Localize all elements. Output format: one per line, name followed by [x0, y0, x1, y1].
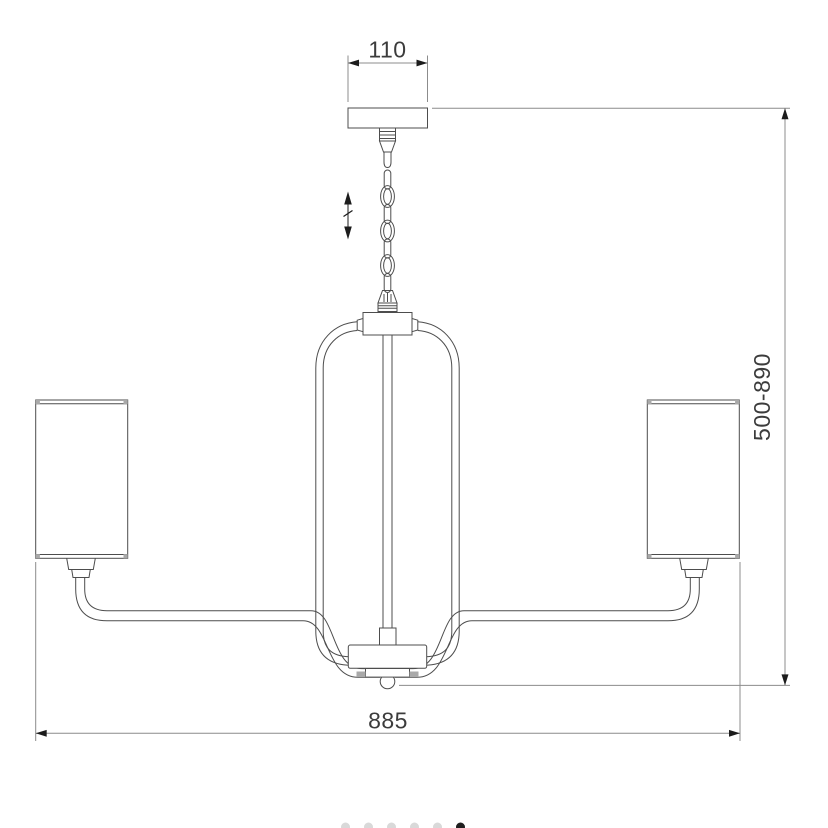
pagination-dot[interactable]	[410, 823, 419, 828]
height-range-label: 500-890	[749, 353, 775, 441]
top-hub-body	[363, 313, 412, 336]
left-shade-body	[36, 400, 128, 558]
product-artwork	[36, 108, 740, 689]
shade-corner-mark	[735, 400, 739, 404]
knurl-lines	[380, 132, 396, 139]
arrow-down-icon	[782, 674, 789, 685]
chain-link-inner	[384, 258, 392, 273]
frame-left-outer	[316, 322, 357, 666]
left-arm-top-line	[85, 578, 372, 669]
shade-corner-mark	[647, 400, 651, 404]
left-shade	[36, 400, 128, 578]
canopy-hook-loop	[384, 152, 391, 168]
canopy-cone	[380, 141, 396, 152]
pagination-dot[interactable]	[433, 823, 442, 828]
pagination-dots	[341, 823, 465, 828]
dimension-arrows	[36, 60, 789, 737]
right-shade-socket-upper	[680, 558, 709, 569]
right-shade-body	[647, 400, 739, 558]
chain-link-inner	[384, 223, 392, 238]
bottom-hub-body	[348, 645, 426, 668]
total-width-label: 885	[368, 708, 408, 734]
adjust-arrow-up-icon	[344, 192, 352, 205]
dimension-labels: 110 500-890 885	[368, 37, 775, 734]
top-hub-left-nub	[357, 319, 363, 332]
right-shade	[647, 400, 739, 578]
pagination-dot[interactable]	[341, 823, 350, 828]
left-shade-socket-upper	[67, 558, 96, 569]
bottom-plate-left-tab	[357, 672, 366, 678]
bottom-plate-right-tab	[410, 672, 419, 678]
shade-corner-mark	[647, 554, 651, 558]
arrow-right-icon	[417, 60, 428, 67]
top-hub	[357, 313, 418, 336]
dimension-lines	[36, 56, 790, 742]
chain-socket-ribs	[384, 293, 391, 302]
frame-left-inner	[323, 331, 357, 657]
pagination-dot[interactable]	[387, 823, 396, 828]
center-rod-collar	[380, 628, 397, 645]
canopy-plate	[348, 108, 428, 128]
center-rod	[380, 335, 397, 645]
center-rod-lines	[383, 335, 392, 628]
arrow-up-icon	[782, 108, 789, 119]
chandelier-dimension-drawing: 110 500-890 885	[0, 0, 828, 828]
pagination-dot[interactable]	[364, 823, 373, 828]
shade-corner-mark	[36, 554, 40, 558]
frame-right-inner	[418, 331, 452, 657]
chain-link-inner	[384, 189, 392, 204]
shade-corner-mark	[36, 400, 40, 404]
shade-corner-mark	[124, 554, 128, 558]
chain-socket-band	[378, 303, 397, 312]
frame-tubes	[316, 322, 459, 666]
frame-right-outer	[418, 322, 459, 666]
pagination-dot-active[interactable]	[456, 823, 465, 828]
height-adjust-shaft	[344, 205, 353, 227]
chain-socket-band-lines	[378, 306, 397, 308]
right-shade-socket-lower	[685, 570, 704, 578]
shade-corner-mark	[124, 400, 128, 404]
canopy-width-label: 110	[368, 37, 406, 63]
left-shade-socket-lower	[72, 570, 91, 578]
bottom-plate	[366, 669, 410, 678]
top-hub-right-nub	[412, 319, 418, 332]
right-arm-top-line	[403, 578, 690, 669]
arrow-left-icon	[348, 60, 359, 67]
shade-corner-mark	[735, 554, 739, 558]
adjust-arrow-down-icon	[344, 227, 352, 240]
ceiling-canopy	[348, 108, 428, 168]
bottom-hub-assembly	[348, 645, 426, 689]
arrow-right-icon	[729, 730, 740, 737]
arrow-left-icon	[36, 730, 47, 737]
suspension-chain	[378, 170, 397, 312]
